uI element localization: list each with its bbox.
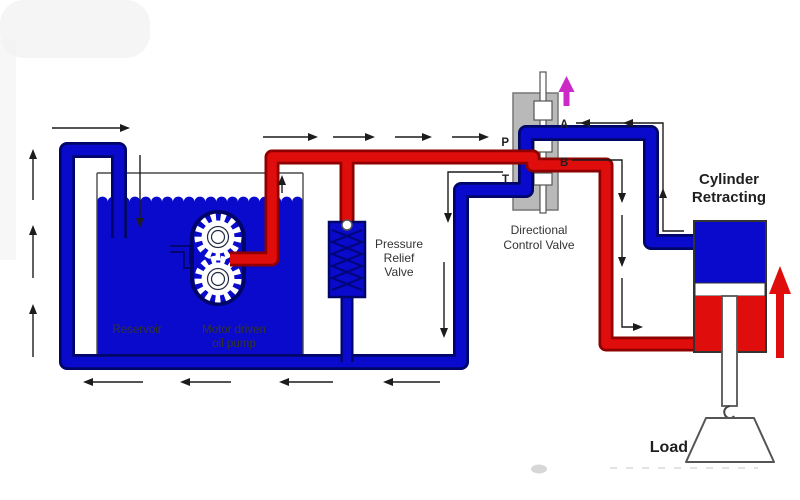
port-label-t: T <box>502 174 509 186</box>
dcv-label-line2: Control Valve <box>503 238 574 252</box>
cylinder-label-line2: Retracting <box>692 189 766 206</box>
piston-rod <box>722 296 737 406</box>
edge-haze <box>0 40 16 260</box>
pump-label-line1: Motor driven <box>202 324 266 336</box>
load-label: Load <box>650 439 688 456</box>
hydraulic-circuit-diagram: Reservoir Motor driven oil pump Pressure… <box>0 0 800 500</box>
pump-label-line2: oil pump <box>212 338 255 350</box>
corner-haze <box>0 0 150 58</box>
cylinder-cap-side-fluid <box>695 222 765 283</box>
pressure-relief-valve <box>329 220 365 297</box>
relief-valve-label-line1: Pressure <box>375 237 423 251</box>
port-label-a: A <box>560 119 568 131</box>
relief-valve-label-line2: Relief <box>384 251 415 265</box>
reservoir-label: Reservoir <box>112 324 161 336</box>
port-label-p: P <box>501 137 509 149</box>
port-label-b: B <box>560 157 568 169</box>
dcv-label-line1: Directional <box>511 223 568 237</box>
diagram-canvas: Reservoir Motor driven oil pump Pressure… <box>0 0 800 500</box>
spool-land-top <box>534 101 552 120</box>
cylinder-piston <box>695 283 765 296</box>
watermark-smudge <box>531 465 547 474</box>
cylinder-label-line1: Cylinder <box>699 171 759 188</box>
relief-valve-label-line3: Valve <box>384 265 413 279</box>
relief-valve-poppet <box>342 220 352 230</box>
spool-land-bottom <box>534 173 552 185</box>
